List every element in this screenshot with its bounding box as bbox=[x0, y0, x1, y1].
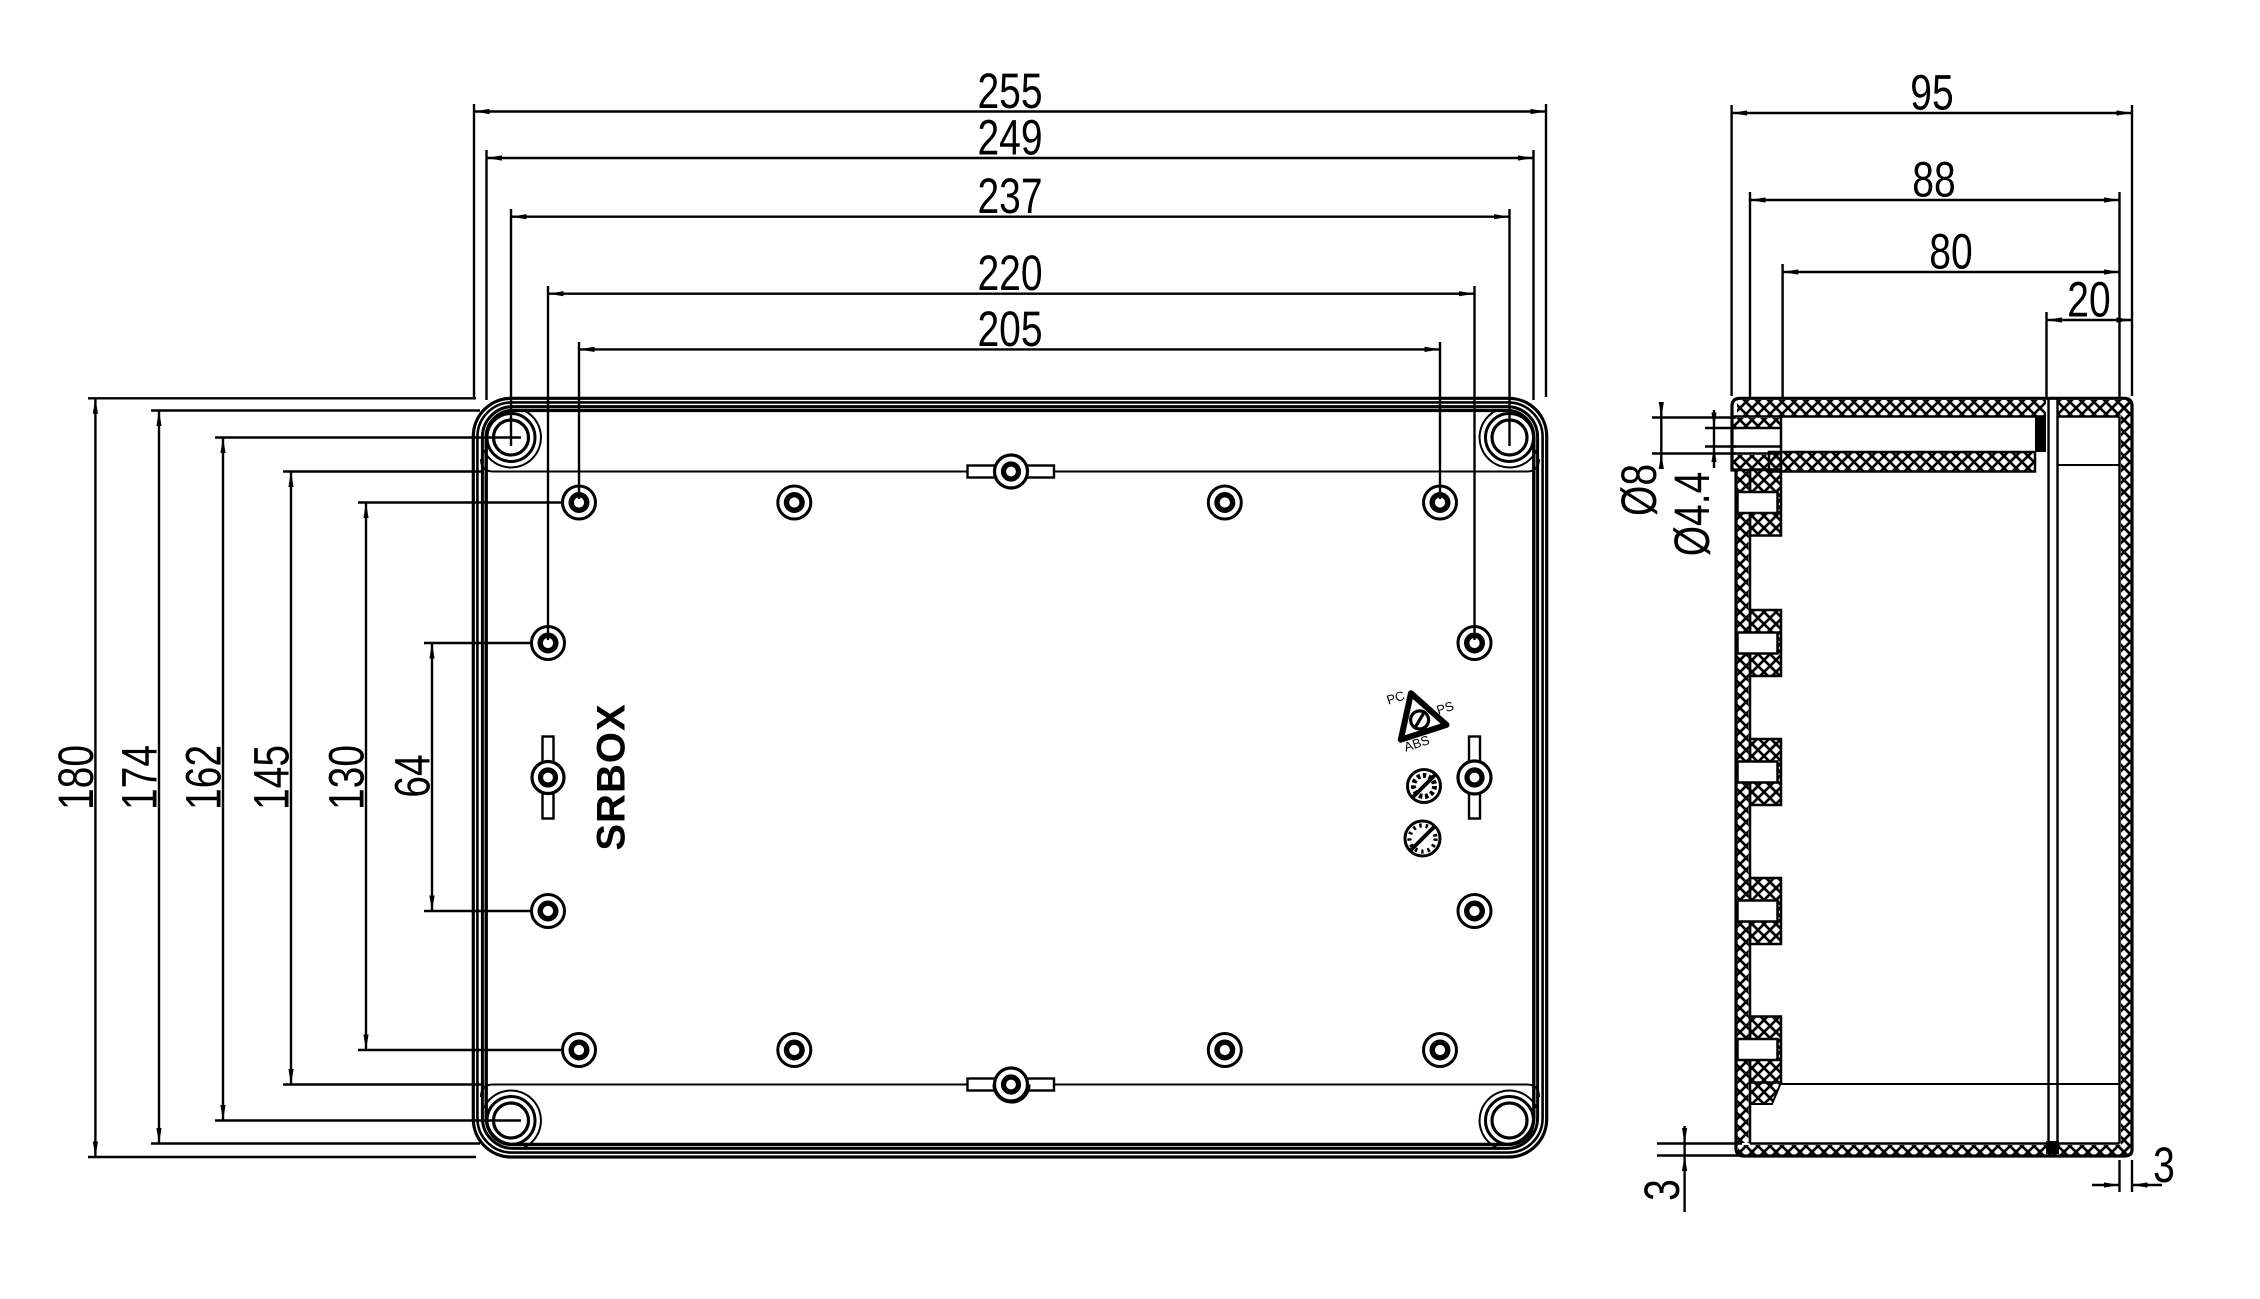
svg-text:162: 162 bbox=[176, 745, 232, 810]
svg-text:95: 95 bbox=[1910, 65, 1953, 121]
svg-text:220: 220 bbox=[977, 245, 1042, 301]
svg-text:3: 3 bbox=[2153, 1137, 2175, 1193]
svg-text:20: 20 bbox=[2067, 272, 2110, 328]
svg-text:Ø4.4: Ø4.4 bbox=[1664, 472, 1720, 557]
svg-text:145: 145 bbox=[244, 745, 300, 810]
svg-text:3: 3 bbox=[1634, 1179, 1690, 1201]
svg-text:64: 64 bbox=[385, 754, 441, 797]
svg-text:Ø8: Ø8 bbox=[1611, 464, 1667, 516]
svg-text:205: 205 bbox=[977, 301, 1042, 357]
svg-text:80: 80 bbox=[1929, 224, 1972, 280]
svg-text:SRBOX: SRBOX bbox=[590, 703, 634, 850]
svg-text:174: 174 bbox=[112, 745, 168, 810]
svg-text:130: 130 bbox=[319, 745, 375, 810]
svg-text:237: 237 bbox=[977, 168, 1042, 224]
svg-text:249: 249 bbox=[977, 110, 1042, 166]
svg-text:88: 88 bbox=[1912, 152, 1955, 208]
svg-text:180: 180 bbox=[48, 745, 104, 810]
